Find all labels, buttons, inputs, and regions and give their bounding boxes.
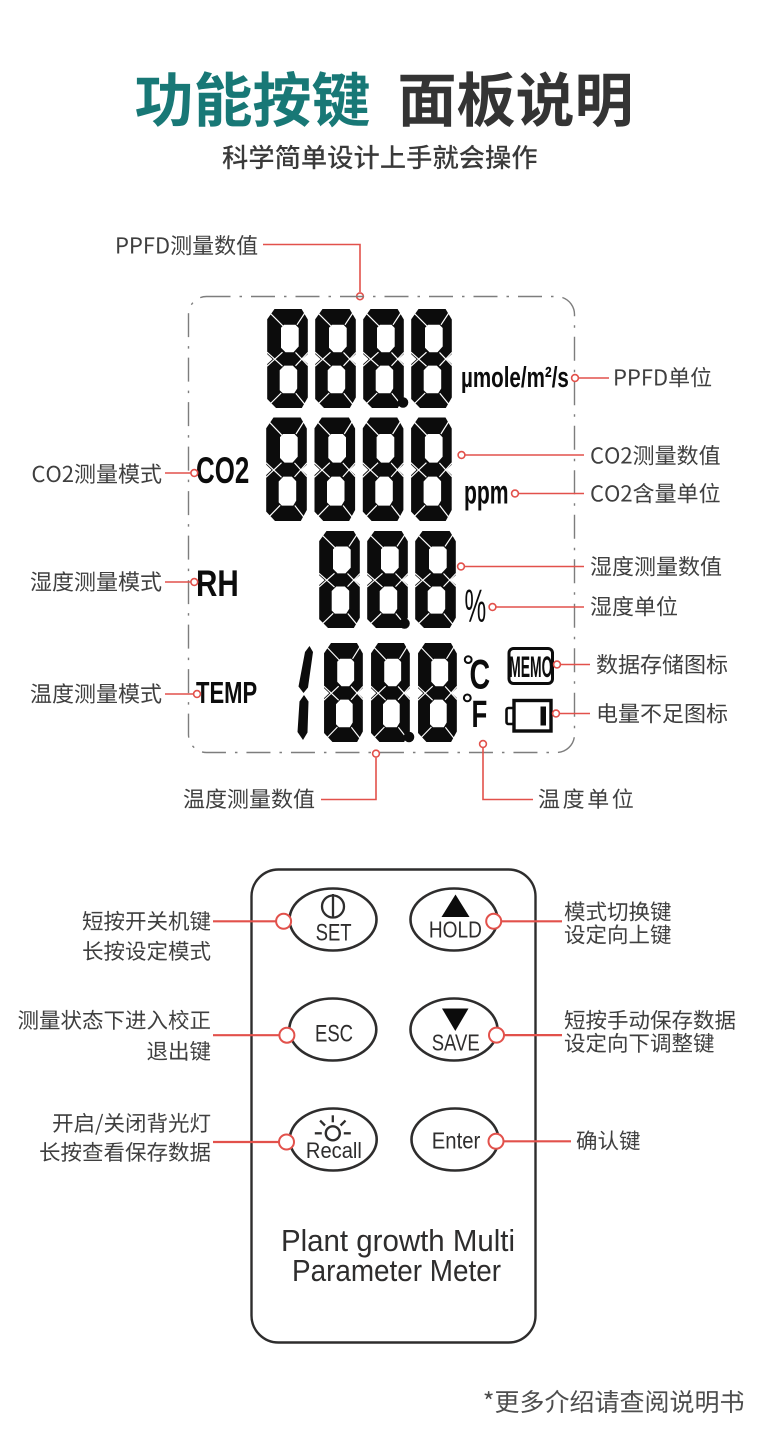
svg-text:CO2: CO2 [196,449,249,491]
svg-text:%: % [465,580,487,631]
svg-text:ppm: ppm [464,474,509,511]
svg-text:Enter: Enter [432,1127,481,1153]
svg-text:SAVE: SAVE [432,1030,480,1056]
svg-text:SET: SET [316,920,352,947]
svg-text:µmole/m²/s: µmole/m²/s [461,362,569,394]
svg-text:RH: RH [196,564,239,605]
svg-text:HOLD: HOLD [429,917,482,943]
svg-text:ESC: ESC [315,1020,353,1047]
svg-text:Plant growth Multi: Plant growth Multi [281,1224,515,1258]
svg-text:F: F [472,693,488,735]
svg-text:Parameter Meter: Parameter Meter [292,1254,501,1288]
svg-text:Recall: Recall [306,1138,362,1163]
svg-text:TEMP: TEMP [196,675,257,710]
svg-text:MEMO: MEMO [509,650,552,683]
svg-text:C: C [470,650,491,698]
